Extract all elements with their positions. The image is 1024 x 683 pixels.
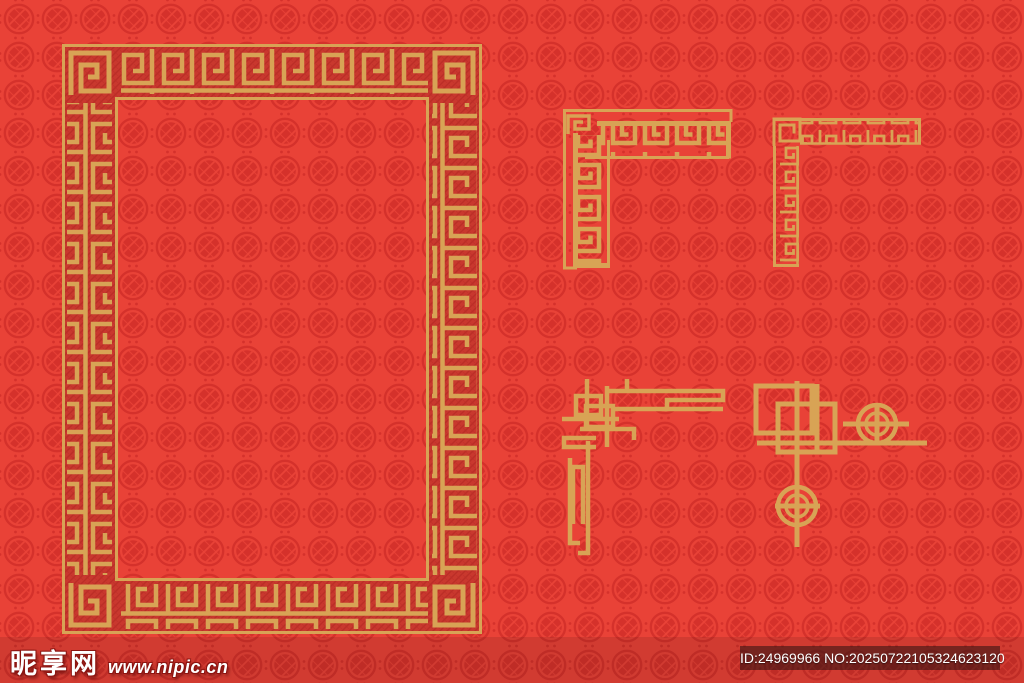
poster-canvas: 昵享网 www.nipic.cn ID:24969966 NO:20250722… [0, 0, 1024, 683]
id-badge: ID:24969966 NO:20250722105324623120 [740, 646, 1000, 670]
site-url-label: www.nipic.cn [108, 657, 228, 678]
decorative-artwork [0, 0, 1024, 683]
watermark: 昵享网 www.nipic.cn [10, 642, 228, 681]
site-name-label: 昵享网 [10, 642, 100, 681]
